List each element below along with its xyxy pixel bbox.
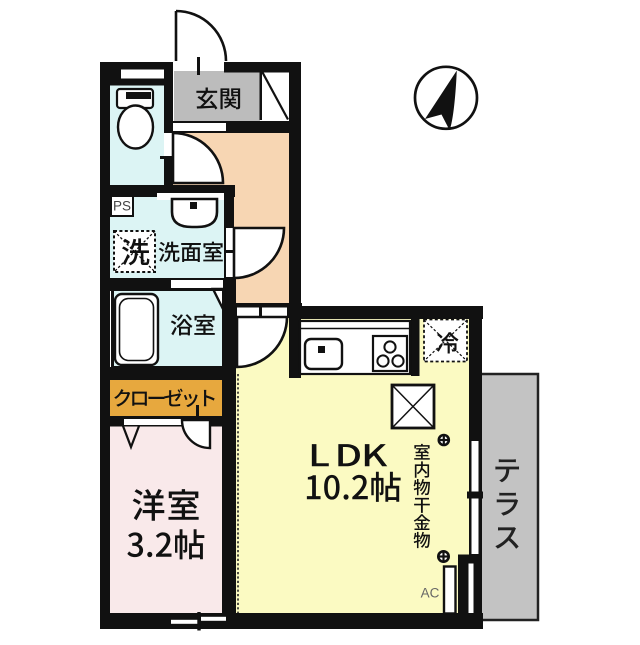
svg-text:AC: AC (421, 586, 440, 601)
svg-text:PS: PS (113, 199, 131, 214)
